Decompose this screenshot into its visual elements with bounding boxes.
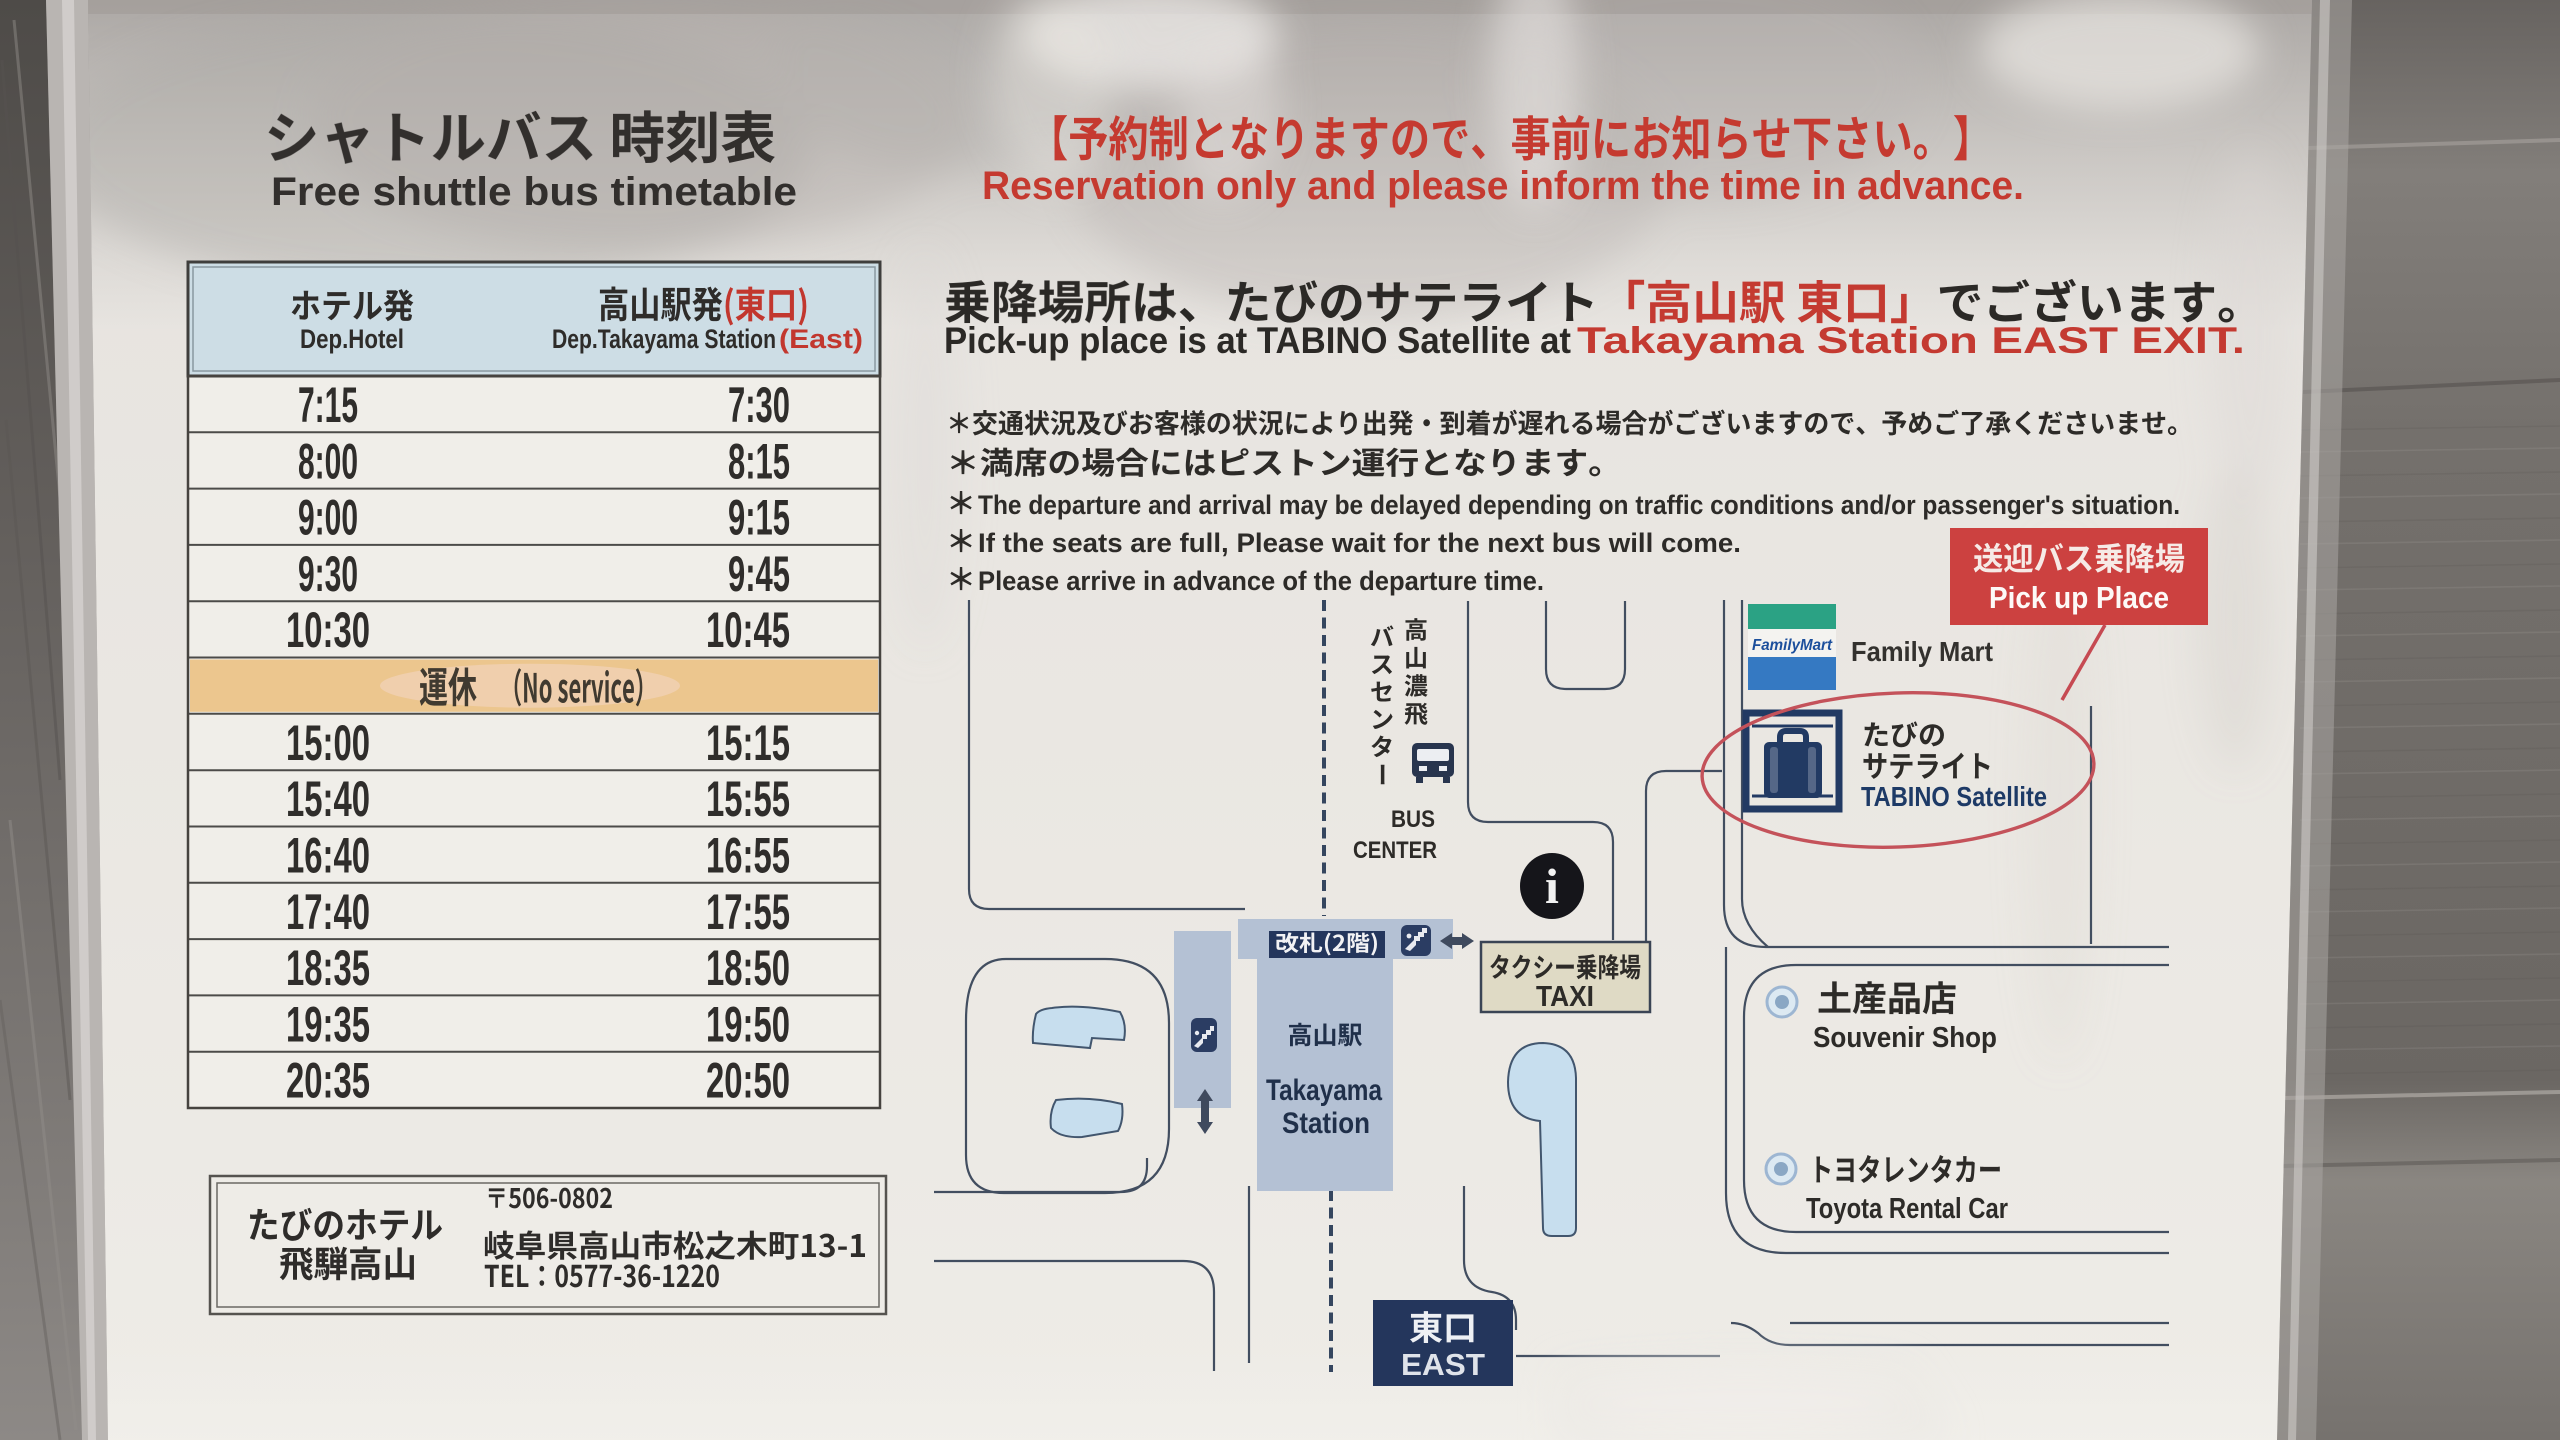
svg-text:If the seats are full, Please: If the seats are full, Please wait for t… (978, 528, 1741, 558)
svg-text:10:45: 10:45 (706, 602, 790, 658)
svg-text:Family Mart: Family Mart (1851, 636, 1993, 667)
svg-text:TABINO Satellite: TABINO Satellite (1861, 781, 2047, 812)
svg-text:15:55: 15:55 (706, 771, 790, 827)
svg-text:7:30: 7:30 (728, 377, 790, 433)
svg-text:Dep.Takayama Station: Dep.Takayama Station (552, 324, 776, 354)
svg-text:Dep.Hotel: Dep.Hotel (300, 324, 404, 354)
svg-text:18:50: 18:50 (706, 940, 790, 996)
svg-text:8:15: 8:15 (728, 433, 790, 489)
svg-text:Souvenir Shop: Souvenir Shop (1813, 1022, 1997, 1054)
svg-text:i: i (1545, 858, 1559, 914)
svg-text:8:00: 8:00 (298, 433, 358, 489)
svg-text:9:30: 9:30 (298, 546, 358, 602)
svg-text:10:30: 10:30 (286, 602, 370, 658)
svg-text:16:40: 16:40 (286, 828, 370, 884)
svg-text:16:55: 16:55 (706, 828, 790, 884)
svg-text:9:45: 9:45 (728, 546, 790, 602)
svg-text:FamilyMart: FamilyMart (1752, 637, 1833, 654)
svg-text:Please arrive in advance of th: Please arrive in advance of the departur… (978, 566, 1544, 596)
svg-text:7:15: 7:15 (298, 377, 358, 433)
svg-text:The departure and arrival may: The departure and arrival may be delayed… (978, 490, 2180, 520)
svg-text:20:50: 20:50 (706, 1053, 790, 1109)
svg-text:19:35: 19:35 (286, 996, 370, 1052)
svg-text:17:55: 17:55 (706, 884, 790, 940)
svg-text:9:15: 9:15 (728, 490, 790, 546)
svg-text:Takayama Station EAST EXIT.: Takayama Station EAST EXIT. (1577, 320, 2245, 361)
svg-text:Free shuttle bus timetable: Free shuttle bus timetable (271, 170, 797, 214)
svg-text:BUS: BUS (1391, 806, 1435, 833)
svg-text:20:35: 20:35 (286, 1053, 370, 1109)
svg-text:Station: Station (1282, 1107, 1370, 1140)
svg-text:TAXI: TAXI (1536, 981, 1594, 1013)
svg-text:Toyota Rental Car: Toyota Rental Car (1806, 1193, 2008, 1225)
svg-text:15:15: 15:15 (706, 715, 790, 771)
svg-text:17:40: 17:40 (286, 884, 370, 940)
svg-text:Takayama: Takayama (1266, 1074, 1382, 1107)
svg-text:(East): (East) (779, 324, 863, 354)
svg-text:9:00: 9:00 (298, 490, 358, 546)
svg-text:19:50: 19:50 (706, 996, 790, 1052)
svg-text:18:35: 18:35 (286, 940, 370, 996)
svg-text:15:40: 15:40 (286, 771, 370, 827)
svg-text:Pick up Place: Pick up Place (1989, 580, 2169, 615)
svg-text:CENTER: CENTER (1353, 837, 1437, 864)
svg-text:Reservation only and please in: Reservation only and please inform the t… (982, 164, 2024, 208)
svg-text:EAST: EAST (1401, 1347, 1485, 1382)
svg-text:15:00: 15:00 (286, 715, 370, 771)
svg-text:Pick-up place is at TABINO Sa: Pick-up place is at TABINO Satellite at (944, 320, 1571, 361)
